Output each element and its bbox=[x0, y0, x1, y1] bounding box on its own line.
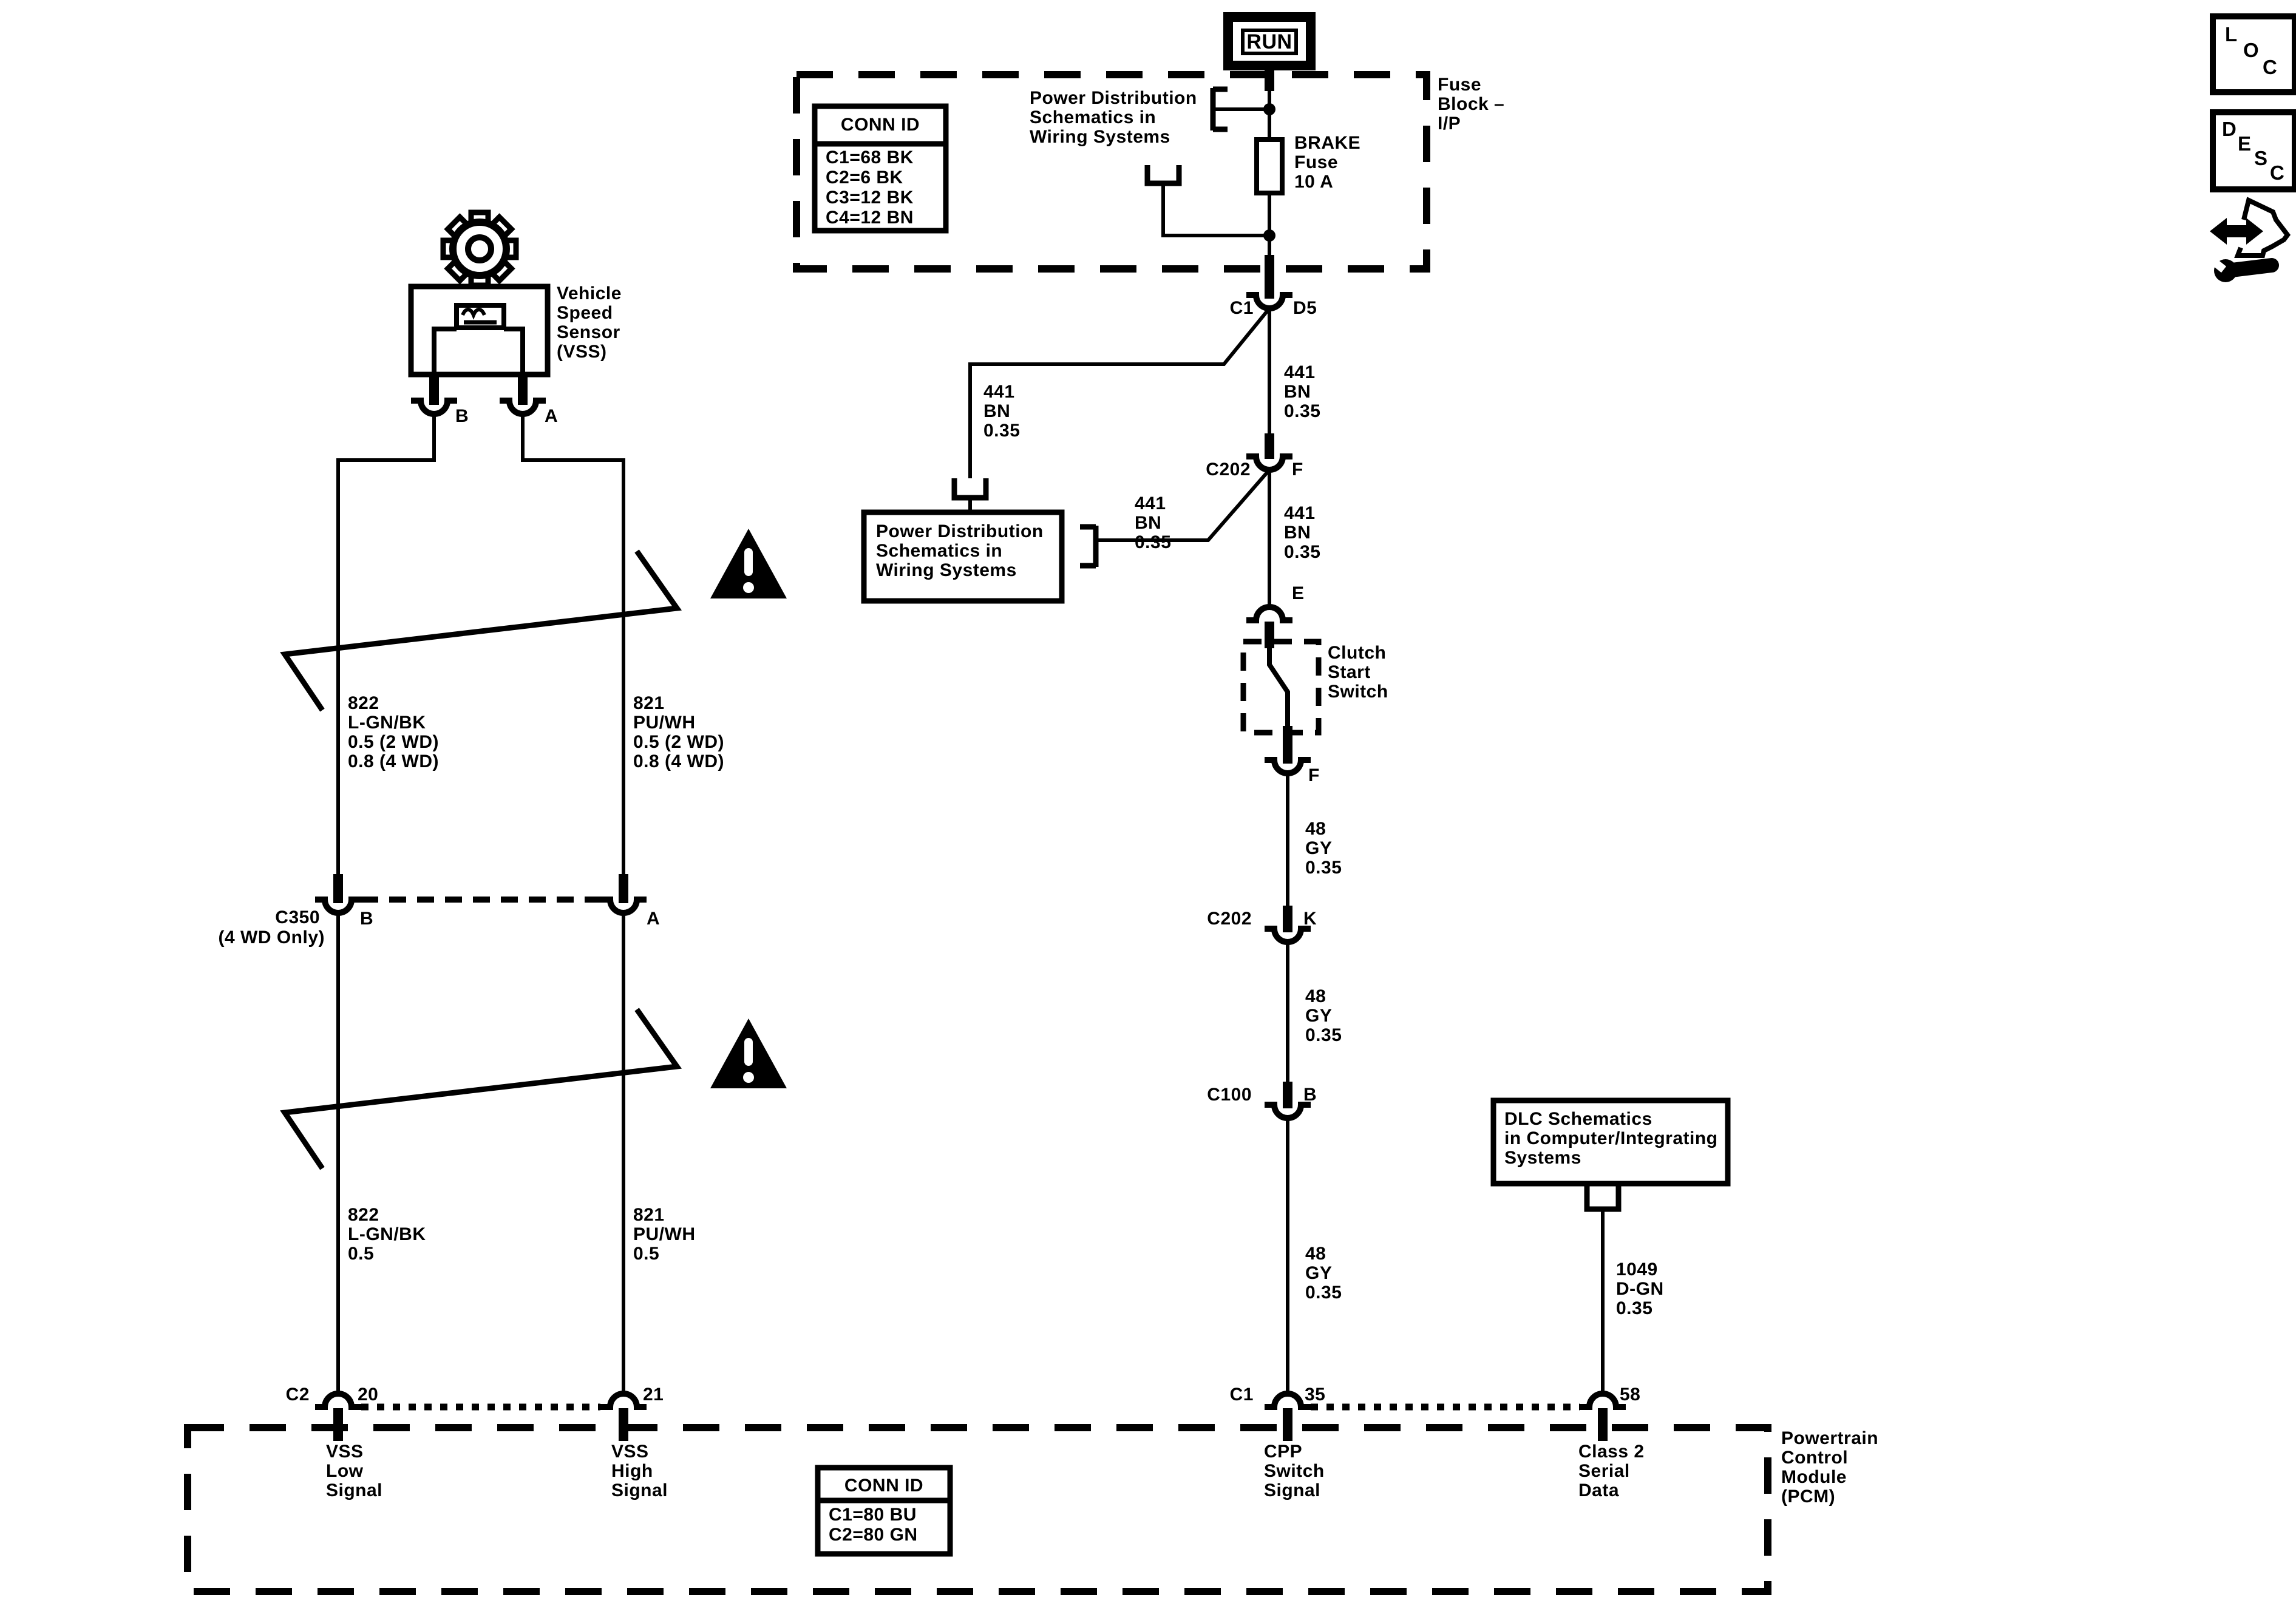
pcm-pin-35: 35 bbox=[1305, 1385, 1325, 1405]
harness-slash-lower bbox=[285, 1009, 677, 1168]
stroke-c202f bbox=[1265, 433, 1274, 459]
conn-id-top-row-1: C2=6 BK bbox=[826, 168, 903, 188]
desc-letter-c: C bbox=[2270, 163, 2284, 183]
wire-label-441-main-lower: 441 BN 0.35 bbox=[1284, 504, 1320, 562]
wire-label-822-lower: 822 L-GN/BK 0.5 bbox=[348, 1205, 426, 1264]
stroke-pin58 bbox=[1598, 1408, 1608, 1441]
wiring-diagram-canvas: RUN Fuse Block – I/P Power Distribution … bbox=[0, 0, 2296, 1617]
stroke-pin21 bbox=[619, 1408, 628, 1441]
clutch-switch-border bbox=[1243, 642, 1319, 733]
vss-pin-a: A bbox=[545, 407, 558, 426]
brake-fuse-label: BRAKE Fuse 10 A bbox=[1294, 134, 1360, 192]
conn-id-top-row-0: C1=68 BK bbox=[826, 148, 914, 168]
connector-e bbox=[1246, 607, 1292, 620]
signal-vss-low: VSS Low Signal bbox=[326, 1442, 382, 1500]
pcm-pin-21: 21 bbox=[643, 1385, 664, 1405]
stroke-vss-b bbox=[429, 375, 439, 405]
pcm-pin-c1: C1 bbox=[1230, 1385, 1254, 1405]
label-f: F bbox=[1308, 766, 1320, 785]
stroke-c350a bbox=[619, 874, 628, 903]
clutch-switch-blade bbox=[1269, 642, 1288, 733]
label-c202-k-conn: C202 bbox=[1207, 909, 1252, 929]
double-arrow-icon bbox=[2210, 218, 2263, 245]
nav-arrows-wrench-icon[interactable] bbox=[2210, 200, 2288, 282]
vss-pin-b: B bbox=[455, 407, 469, 426]
pcm-pin-58: 58 bbox=[1620, 1385, 1640, 1405]
label-c202-f-pin: F bbox=[1292, 460, 1303, 480]
power-dist-note-top: Power Distribution Schematics in Wiring … bbox=[1030, 89, 1197, 147]
stroke-c202k bbox=[1283, 906, 1292, 932]
signal-class2-serial: Class 2 Serial Data bbox=[1578, 1442, 1645, 1500]
pcm-pin-c2: C2 bbox=[286, 1385, 310, 1405]
wire-label-48-upper: 48 GY 0.35 bbox=[1305, 819, 1342, 878]
dlc-box-label: DLC Schematics in Computer/Integrating S… bbox=[1504, 1110, 1718, 1168]
c350-name: C350 bbox=[275, 908, 320, 927]
wire-label-48-middle: 48 GY 0.35 bbox=[1305, 987, 1342, 1045]
junction-dot-upper bbox=[1263, 103, 1275, 115]
harness-slash-upper bbox=[285, 551, 677, 710]
signal-vss-high: VSS High Signal bbox=[611, 1442, 668, 1500]
loc-letter-c: C bbox=[2263, 57, 2277, 77]
loc-button[interactable]: L O C bbox=[2210, 13, 2296, 95]
conn-id-pcm-title: CONN ID bbox=[818, 1476, 950, 1496]
label-c202-f-conn: C202 bbox=[1206, 460, 1251, 480]
stroke-c100b bbox=[1283, 1082, 1292, 1108]
u-connector-left-branch bbox=[954, 478, 986, 498]
conn-id-top-row-3: C4=12 BN bbox=[826, 208, 914, 228]
vss-box bbox=[411, 286, 548, 375]
label-c100-b-conn: C100 bbox=[1207, 1085, 1252, 1105]
connector-pin20 bbox=[315, 1394, 361, 1407]
conn-id-top-title: CONN ID bbox=[815, 115, 946, 135]
wire-label-821-lower: 821 PU/WH 0.5 bbox=[633, 1205, 696, 1264]
wire-label-441-box-branch: 441 BN 0.35 bbox=[1135, 494, 1171, 552]
junction-dot-lower bbox=[1263, 229, 1275, 242]
stroke-c350b bbox=[333, 874, 343, 903]
wire-label-1049: 1049 D-GN 0.35 bbox=[1616, 1260, 1664, 1318]
gear-icon bbox=[443, 212, 516, 285]
wire-label-48-lower: 48 GY 0.35 bbox=[1305, 1244, 1342, 1303]
warning-icon-lower bbox=[710, 1019, 787, 1088]
loc-letter-l: L bbox=[2225, 24, 2237, 44]
stroke-pin20 bbox=[333, 1408, 343, 1441]
desc-letter-d: D bbox=[2222, 119, 2237, 139]
label-c202-k-pin: K bbox=[1303, 909, 1317, 929]
bracket-box-note bbox=[1080, 526, 1096, 567]
vss-label: Vehicle Speed Sensor (VSS) bbox=[557, 284, 622, 362]
wires bbox=[338, 66, 1603, 1394]
connector-pin35 bbox=[1265, 1394, 1311, 1407]
pcm-label: Powertrain Control Module (PCM) bbox=[1781, 1429, 1878, 1507]
warning-icon-upper bbox=[710, 529, 787, 598]
u-connector-dlc bbox=[1587, 1185, 1618, 1209]
connector-pin21 bbox=[600, 1394, 647, 1407]
wire-vss-high-upper bbox=[523, 414, 623, 875]
solid-boxes bbox=[411, 17, 1728, 1554]
c350-pin-a: A bbox=[647, 909, 660, 929]
fuse-element bbox=[1257, 140, 1282, 193]
wire-box-branch bbox=[1096, 470, 1269, 540]
label-c100-b-pin: B bbox=[1303, 1085, 1317, 1105]
u-connector-top-note bbox=[1147, 165, 1179, 183]
label-e: E bbox=[1292, 584, 1305, 603]
power-dist-box-label: Power Distribution Schematics in Wiring … bbox=[876, 522, 1044, 580]
fuse-block-label: Fuse Block – I/P bbox=[1438, 75, 1504, 134]
label-c1: C1 bbox=[1230, 299, 1254, 318]
desc-letter-s: S bbox=[2254, 148, 2267, 168]
clutch-switch-label: Clutch Start Switch bbox=[1328, 643, 1388, 702]
wire-label-821-upper: 821 PU/WH 0.5 (2 WD) 0.8 (4 WD) bbox=[633, 694, 724, 771]
pcm-pin-20: 20 bbox=[358, 1385, 378, 1405]
wire-label-441-left-branch: 441 BN 0.35 bbox=[983, 382, 1020, 441]
conn-id-pcm-row-1: C2=80 GN bbox=[829, 1525, 918, 1545]
wire-label-822-upper: 822 L-GN/BK 0.5 (2 WD) 0.8 (4 WD) bbox=[348, 694, 439, 771]
conn-id-pcm-row-0: C1=80 BU bbox=[829, 1505, 917, 1525]
c350-note: (4 WD Only) bbox=[219, 928, 325, 947]
desc-button[interactable]: D E S C bbox=[2210, 109, 2296, 192]
conn-id-top-row-2: C3=12 BK bbox=[826, 188, 914, 208]
desc-letter-e: E bbox=[2238, 134, 2251, 154]
stroke-c1d5 bbox=[1265, 255, 1274, 299]
stroke-pin35 bbox=[1283, 1408, 1292, 1441]
loc-letter-o: O bbox=[2243, 40, 2259, 60]
signal-cpp-switch: CPP Switch Signal bbox=[1264, 1442, 1325, 1500]
wire-label-441-main-upper: 441 BN 0.35 bbox=[1284, 363, 1320, 421]
run-label: RUN bbox=[1228, 31, 1311, 53]
pcm-border bbox=[188, 1428, 1768, 1592]
schematic-linework bbox=[0, 0, 2296, 1617]
wrench-icon bbox=[2212, 259, 2272, 282]
c350-pin-b: B bbox=[360, 909, 373, 929]
stroke-vss-a bbox=[518, 375, 528, 405]
wire-top-note-branch bbox=[1163, 183, 1269, 236]
connector-pin58 bbox=[1580, 1394, 1626, 1407]
label-d5: D5 bbox=[1293, 299, 1317, 318]
